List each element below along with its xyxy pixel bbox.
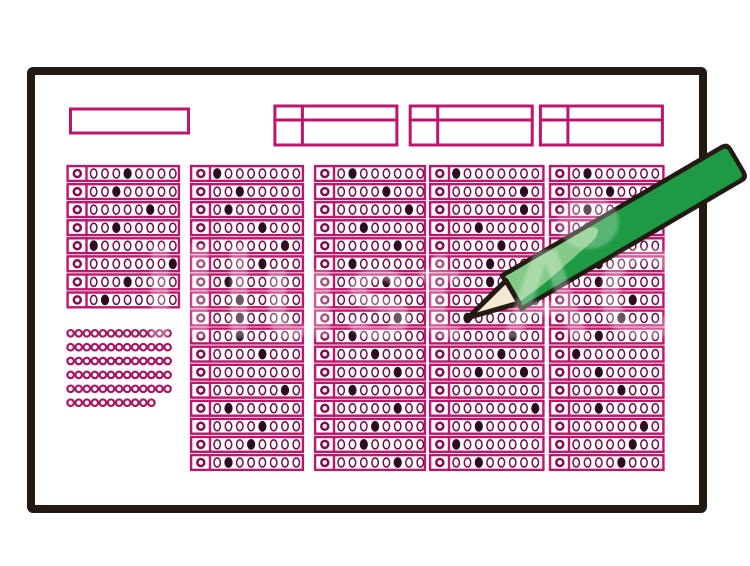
svg-text:illust AC: illust AC — [142, 223, 692, 366]
